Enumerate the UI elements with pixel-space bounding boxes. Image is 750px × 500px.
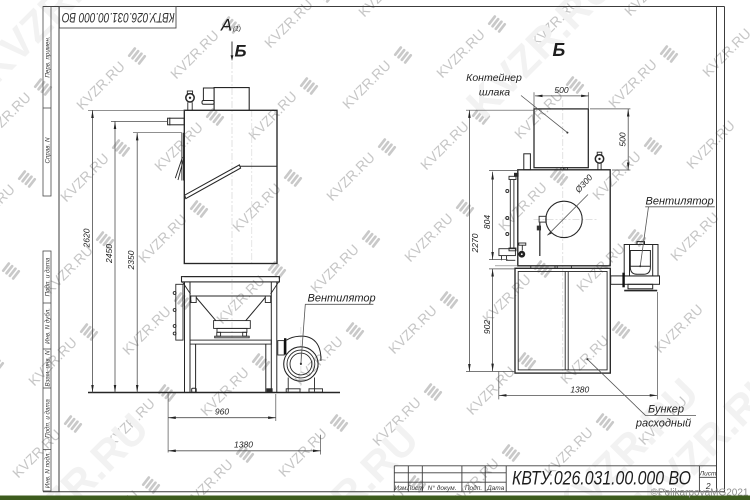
svg-text:960: 960 (215, 407, 229, 417)
svg-text:902: 902 (482, 320, 492, 334)
svg-text:Б: Б (553, 40, 566, 60)
svg-text:КВТУ.026.031.00.000 ВО: КВТУ.026.031.00.000 ВО (512, 469, 691, 490)
svg-text:(1): (1) (233, 26, 241, 33)
svg-text:©PolikarpovaMG2021: ©PolikarpovaMG2021 (651, 488, 749, 499)
svg-text:Взам. инв. N: Взам. инв. N (44, 350, 51, 387)
svg-text:Лист: Лист (406, 485, 424, 492)
svg-text:Контейнер: Контейнер (466, 72, 522, 84)
svg-text:KVZR.RU: KVZR.RU (0, 404, 157, 500)
svg-text:1380: 1380 (570, 384, 589, 394)
svg-text:804: 804 (482, 215, 492, 229)
svg-text:Перв. примен.: Перв. примен. (44, 36, 51, 77)
svg-text:Подп. и дата: Подп. и дата (44, 257, 51, 296)
svg-text:Лист: Лист (699, 470, 717, 477)
svg-text:Подп. и дата: Подп. и дата (44, 399, 51, 438)
svg-text:2620: 2620 (82, 228, 92, 248)
svg-text:N° докум.: N° докум. (428, 484, 457, 492)
svg-text:1380: 1380 (234, 440, 253, 450)
svg-text:А: А (220, 17, 232, 35)
svg-text:2350: 2350 (126, 250, 136, 270)
svg-text:500: 500 (617, 132, 627, 146)
svg-text:шлака: шлака (479, 87, 510, 99)
svg-text:Инв. N дубл.: Инв. N дубл. (44, 308, 51, 344)
svg-text:КВТУ.026.031.00.000 ВО: КВТУ.026.031.00.000 ВО (62, 10, 175, 26)
svg-text:Бункер: Бункер (648, 404, 684, 416)
svg-text:Дата: Дата (486, 485, 505, 492)
svg-text:Инв. N подл.: Инв. N подл. (44, 452, 51, 488)
svg-text:расходный: расходный (635, 418, 691, 430)
svg-text:Вентилятор: Вентилятор (308, 293, 376, 305)
svg-text:Подп.: Подп. (465, 484, 482, 492)
svg-text:500: 500 (554, 85, 568, 95)
svg-text:2270: 2270 (470, 233, 480, 253)
svg-text:2450: 2450 (104, 244, 114, 264)
svg-text:Вентилятор: Вентилятор (646, 196, 714, 208)
svg-text:Б: Б (235, 42, 247, 61)
svg-text:Справ. N: Справ. N (44, 137, 51, 163)
